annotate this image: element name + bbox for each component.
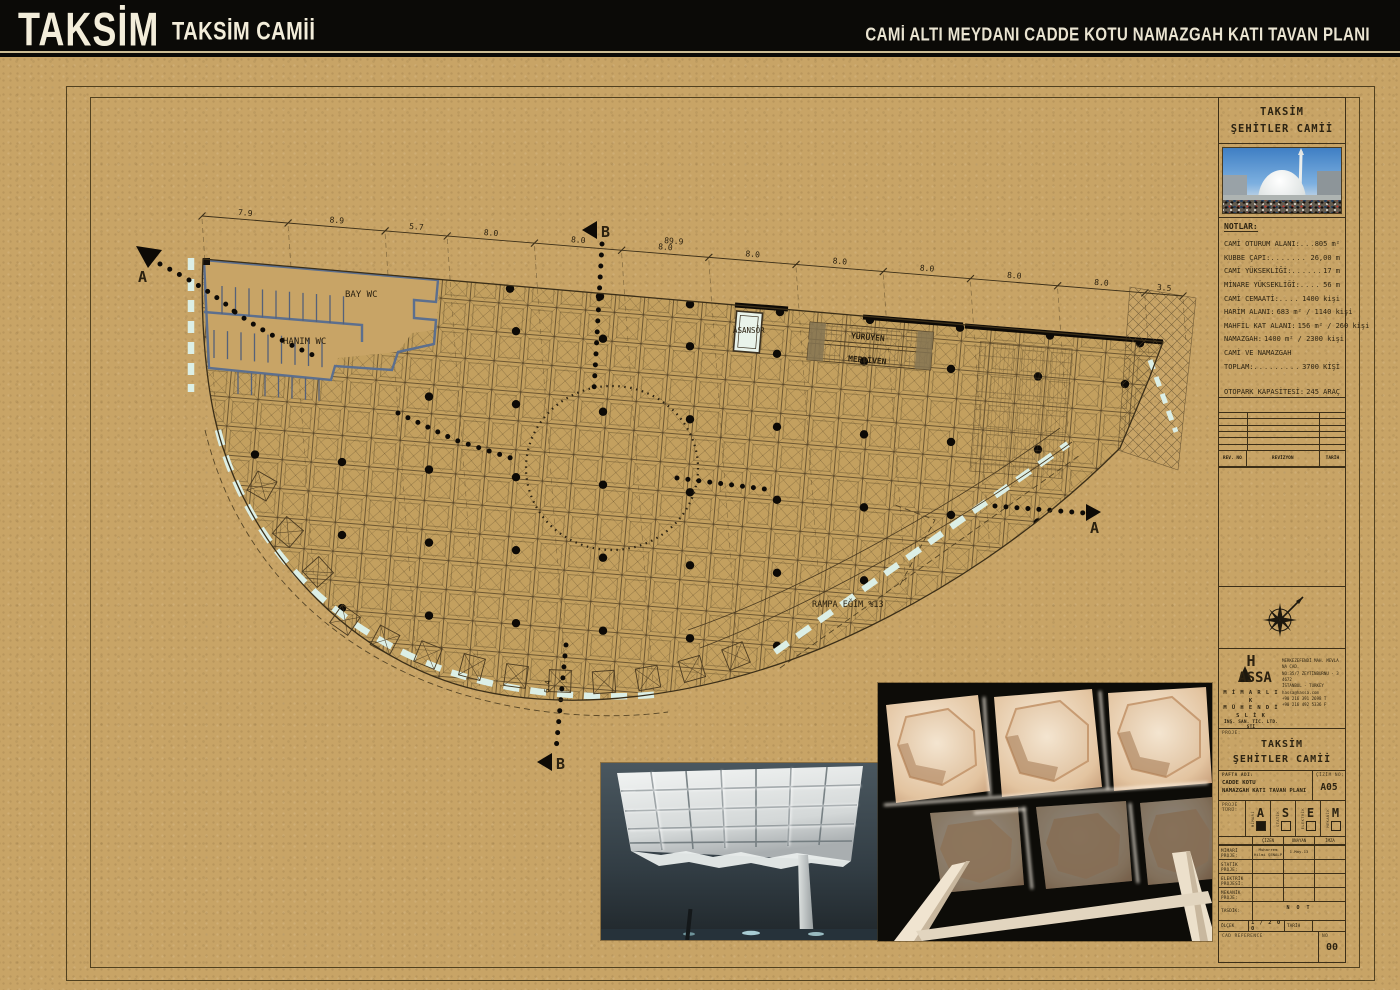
notes-list: CAMİ OTURUM ALANI:805 m²KUBBE ÇAPI:26,00…	[1224, 238, 1340, 400]
firm-address-line: NO:35/7 ZEYTİNBURNU - 34672	[1282, 671, 1341, 684]
firm-name-line2: M Ü H E N D İ S L İ K	[1223, 705, 1279, 720]
render1-image	[601, 763, 878, 940]
dimension-value: 8.0	[1094, 278, 1109, 288]
note-label: CAMİ YÜKSEKLİĞİ:	[1224, 265, 1291, 279]
proje-label: PROJE:	[1222, 731, 1241, 736]
proje-turu-main: M	[1331, 807, 1341, 831]
firm-address: MERKEZEFENDİ MAH. MEVLANA CAD.NO:35/7 ZE…	[1282, 652, 1341, 725]
dimension-value: 8.0	[571, 235, 586, 245]
date-label: TARİH	[1285, 921, 1313, 931]
signature-header-blank	[1219, 837, 1253, 844]
signature-row-cell	[1253, 874, 1284, 887]
proje-turu-main: A	[1256, 807, 1266, 831]
note-label: HARİM ALANI:	[1224, 306, 1275, 320]
svg-text:A: A	[1090, 519, 1099, 537]
blank-cell	[1219, 468, 1345, 587]
note-row: CAMİ CEMAATİ:1400 kişi	[1224, 293, 1340, 307]
firm-block: H ASSA M İ M A R L I K M Ü H E N D İ S L…	[1219, 649, 1345, 729]
scale-value: 1 / 2 0 0	[1249, 921, 1285, 931]
note-label: MİNARE YÜKSEKLİĞİ:	[1224, 279, 1300, 293]
proje-turu-main: E	[1306, 807, 1316, 831]
project-name-line1: TAKSİM	[1260, 104, 1304, 121]
drawing-sheet: TAKSİM TAKSİM CAMİİ CAMİ ALTI MEYDANI CA…	[0, 0, 1400, 990]
signature-row-cell	[1284, 888, 1315, 901]
revision-table: REV. NO REVİZYON TARİH	[1219, 412, 1345, 468]
note-label: CAMİ CEMAATİ:	[1224, 293, 1279, 307]
revision-cell	[1219, 432, 1248, 437]
notes-title: NOTLAR:	[1224, 222, 1258, 232]
photo-crowd	[1223, 200, 1341, 213]
firm-identity: H ASSA M İ M A R L I K M Ü H E N D İ S L…	[1223, 652, 1279, 725]
signature-row: STATİK PROJE:	[1219, 859, 1345, 873]
svg-text:B: B	[556, 755, 565, 773]
pafta-line2: NAMAZGAH KATI TAVAN PLANI	[1222, 787, 1309, 795]
proje-turu-option: MEKANİKM	[1321, 801, 1345, 836]
hassa-logo: H ASSA	[1228, 652, 1274, 686]
signature-row-cell	[1284, 874, 1315, 887]
svg-text:A: A	[138, 268, 147, 286]
sheet-title: CAMİ ALTI MEYDANI CADDE KOTU NAMAZGAH KA…	[865, 25, 1370, 45]
note-value: 1400 kişi	[1300, 293, 1340, 307]
dimension-value: 8.9	[329, 215, 344, 225]
signature-rows: MİMARİ PROJE:Muharrem Hilmi ŞENALP1.May.…	[1219, 845, 1345, 901]
note-label: TOPLAM:	[1224, 361, 1254, 375]
tasdik-row: TASDİK: N O T	[1219, 901, 1345, 921]
note-row: CAMİ OTURUM ALANI:805 m²	[1224, 238, 1340, 252]
revision-cell	[1248, 432, 1320, 437]
rampa-label: RAMPA EĞİM %13	[812, 598, 884, 610]
project-name-line2: ŞEHİTLER CAMİİ	[1231, 121, 1334, 138]
revision-cell	[1248, 419, 1320, 424]
pafta-row: PAFTA ADI: CADDE KOTU NAMAZGAH KATI TAVA…	[1219, 771, 1345, 801]
revision-no-value: 00	[1319, 942, 1345, 953]
signature-row-cell	[1253, 860, 1284, 873]
note-label: CAMİ VE NAMAZGAH	[1224, 347, 1291, 361]
north-compass-icon	[1255, 591, 1309, 645]
sheet-number: A05	[1313, 782, 1345, 793]
note-label: CAMİ OTURUM ALANI:	[1224, 238, 1300, 252]
revision-cell	[1320, 419, 1345, 424]
revision-no-cell: NO 00	[1319, 932, 1345, 962]
revision-cell	[1248, 426, 1320, 431]
scale-row: ÖLÇEK 1 / 2 0 0 TARİH	[1219, 921, 1345, 932]
notes-section: NOTLAR: CAMİ OTURUM ALANI:805 m²KUBBE ÇA…	[1219, 218, 1345, 398]
revision-cell	[1320, 426, 1345, 431]
no-label: NO	[1322, 934, 1328, 939]
render-interior-view	[601, 763, 878, 940]
revision-header-no: REV. NO	[1219, 451, 1247, 466]
pafta-label: PAFTA ADI:	[1222, 773, 1253, 780]
dimension-value: 8.0	[745, 249, 760, 259]
firm-address-line: MERKEZEFENDİ MAH. MEVLANA CAD.	[1282, 658, 1341, 671]
note-label: MAHFİL KAT ALANI:	[1224, 320, 1296, 334]
signature-row-cell: Muharrem Hilmi ŞENALP	[1253, 846, 1284, 859]
svg-text:B: B	[601, 223, 610, 241]
proje-turu-label: PROJE TÜRÜ:	[1222, 803, 1245, 813]
cizim-label: ÇİZİM NO:	[1316, 773, 1344, 778]
note-value: 805 m²	[1313, 238, 1340, 252]
signature-row-label: MEKANİK PROJE:	[1219, 888, 1253, 901]
revision-cell	[1248, 413, 1320, 418]
signature-row-label: MİMARİ PROJE:	[1219, 846, 1253, 859]
proje-turu-checkbox	[1331, 821, 1341, 831]
note-row: CAMİ YÜKSEKLİĞİ:17 m	[1224, 265, 1340, 279]
revision-cell	[1320, 438, 1345, 443]
proje-turu-name: MİMARİ	[1251, 811, 1255, 827]
taksim-logo: TAKSİM	[18, 2, 159, 57]
header-bar: TAKSİM TAKSİM CAMİİ CAMİ ALTI MEYDANI CA…	[0, 0, 1400, 57]
proje-turu-code: S	[1282, 807, 1289, 819]
signature-row-cell	[1315, 874, 1345, 887]
dimension-value: 8.0	[483, 228, 498, 238]
note-row: KUBBE ÇAPI:26,00 m	[1224, 252, 1340, 266]
proje-turu-code: M	[1332, 807, 1339, 819]
revision-header-desc: REVİZYON	[1247, 451, 1320, 466]
note-label: KUBBE ÇAPI:	[1224, 252, 1270, 266]
proje-turu-name: STATİK	[1276, 811, 1280, 827]
small-dimension: 6.4	[543, 680, 552, 693]
revision-header-date: TARİH	[1320, 451, 1345, 466]
cad-reference-cell: CAD REFERENCE	[1219, 932, 1319, 962]
dimension-value: 8.0	[919, 264, 934, 274]
signature-row-label: STATİK PROJE:	[1219, 860, 1253, 873]
signature-row: MİMARİ PROJE:Muharrem Hilmi ŞENALP1.May.…	[1219, 845, 1345, 859]
pafta-line1: CADDE KOTU	[1222, 779, 1309, 787]
proje-turu-row: PROJE TÜRÜ: MİMARİASTATİKSELEKTRİKEMEKAN…	[1219, 801, 1345, 837]
revision-header-row: REV. NO REVİZYON TARİH	[1219, 451, 1345, 467]
dimension-total: 89.9	[664, 236, 684, 247]
signature-row-cell: 1.May.13	[1284, 846, 1315, 859]
revision-empty-rows	[1219, 413, 1345, 451]
note-leader-dots	[1291, 265, 1321, 279]
signature-header-cell: İMZA	[1315, 837, 1345, 844]
dimension-value: 8.0	[832, 256, 847, 266]
asansor-label: ASANSÖR	[733, 326, 765, 335]
note-value: 17 m	[1321, 265, 1340, 279]
dimension-value: 7.9	[238, 208, 253, 218]
revision-cell	[1248, 445, 1320, 450]
svg-text:H: H	[1246, 652, 1255, 670]
proje-turu-label-cell: PROJE TÜRÜ:	[1219, 801, 1246, 836]
signature-row: MEKANİK PROJE:	[1219, 887, 1345, 901]
note-value: 3700 KİŞİ	[1300, 361, 1340, 375]
proje-name-line1: TAKSİM	[1261, 737, 1303, 752]
note-leader-dots	[1254, 361, 1301, 375]
note-value: 683 m² / 1140 kişi	[1275, 306, 1353, 320]
note-leader-dots	[1300, 279, 1321, 293]
logo-subtitle: TAKSİM CAMİİ	[172, 18, 315, 47]
note-value: 156 m² / 260 kişi	[1296, 320, 1370, 334]
proje-turu-name: ELEKTRİK	[1301, 808, 1305, 829]
dimension-value: 8.0	[1007, 271, 1022, 281]
signature-row-cell	[1253, 888, 1284, 901]
photo-minaret-tip	[1298, 148, 1304, 155]
signature-header-row: ÇİZENONAYANİMZA	[1219, 837, 1345, 845]
cad-row: CAD REFERENCE NO 00	[1219, 932, 1345, 962]
proje-turu-code: E	[1307, 807, 1314, 819]
proje-turu-option: ELEKTRİKE	[1296, 801, 1321, 836]
signature-row-label: ELEKTRİK PROJESİ:	[1219, 874, 1253, 887]
signature-header-cell: ONAYAN	[1284, 837, 1315, 844]
proje-turu-name: MEKANİK	[1326, 809, 1330, 828]
revision-cell	[1219, 426, 1248, 431]
proje-turu-code: A	[1257, 807, 1264, 819]
firm-name-line1: M İ M A R L I K	[1223, 690, 1279, 705]
signature-row-cell	[1315, 846, 1345, 859]
note-row: CAMİ VE NAMAZGAH	[1224, 347, 1340, 361]
note-row: MİNARE YÜKSEKLİĞİ:56 m	[1224, 279, 1340, 293]
proje-turu-main: S	[1281, 807, 1291, 831]
proje-turu-option: STATİKS	[1271, 801, 1296, 836]
proje-turu-checkbox	[1306, 821, 1316, 831]
signature-row-cell	[1284, 860, 1315, 873]
note-leader-dots	[1300, 238, 1313, 252]
bay-wc-label: BAY WC	[345, 290, 378, 300]
signature-row: ELEKTRİK PROJESİ:	[1219, 873, 1345, 887]
signature-header-cell: ÇİZEN	[1253, 837, 1284, 844]
revision-cell	[1320, 432, 1345, 437]
revision-cell	[1320, 445, 1345, 450]
pafta-cell: PAFTA ADI: CADDE KOTU NAMAZGAH KATI TAVA…	[1219, 771, 1313, 800]
revision-cell	[1219, 445, 1248, 450]
tasdik-value: N O T	[1253, 902, 1345, 920]
note-row: NAMAZGAH:1400 m² / 2300 kişi	[1224, 333, 1340, 347]
render-coffer-closeup	[878, 683, 1212, 941]
date-value	[1313, 921, 1345, 931]
revision-cell	[1248, 438, 1320, 443]
note-value: 1400 m² / 2300 kişi	[1262, 333, 1344, 347]
dimension-value: 3.5	[1157, 283, 1172, 293]
note-leader-dots	[1279, 293, 1300, 307]
svg-text:ASSA: ASSA	[1238, 670, 1272, 686]
notes-gap	[1224, 374, 1340, 386]
proje-turu-options: MİMARİASTATİKSELEKTRİKEMEKANİKM	[1246, 801, 1345, 836]
cizim-no-cell: ÇİZİM NO: A05	[1313, 771, 1345, 800]
note-value: 26,00 m	[1308, 252, 1340, 266]
title-block-project-name: TAKSİM ŞEHİTLER CAMİİ	[1219, 98, 1345, 144]
note-value: 56 m	[1321, 279, 1340, 293]
proje-turu-checkbox	[1281, 821, 1291, 831]
note-leader-dots	[1270, 252, 1308, 266]
note-row: MAHFİL KAT ALANI:156 m² / 260 kişi	[1224, 320, 1340, 334]
stair-structure-hatch	[970, 341, 1072, 478]
cad-reference-label: CAD REFERENCE	[1222, 934, 1263, 939]
project-photo-cell	[1219, 144, 1345, 218]
render2-image	[878, 683, 1212, 941]
revision-cell	[1219, 413, 1248, 418]
firm-address-line: +90 216 492 5336 F	[1282, 702, 1341, 708]
compass-cell	[1219, 587, 1345, 649]
revision-cell	[1219, 419, 1248, 424]
proje-cell: PROJE: TAKSİM ŞEHİTLER CAMİİ	[1219, 729, 1345, 771]
tasdik-label: TASDİK:	[1219, 902, 1253, 920]
revision-cell	[1219, 438, 1248, 443]
signature-row-cell	[1315, 860, 1345, 873]
spacer	[1219, 398, 1345, 412]
title-block: TAKSİM ŞEHİTLER CAMİİ NOTLAR: CAMİ OTURU…	[1218, 97, 1346, 963]
scale-label: ÖLÇEK	[1219, 921, 1249, 931]
note-row: HARİM ALANI:683 m² / 1140 kişi	[1224, 306, 1340, 320]
dimension-value: 5.7	[409, 222, 424, 232]
note-label: NAMAZGAH:	[1224, 333, 1262, 347]
mosque-photo	[1223, 148, 1341, 213]
proje-name-line2: ŞEHİTLER CAMİİ	[1233, 752, 1331, 767]
signature-row-cell	[1315, 888, 1345, 901]
revision-cell	[1320, 413, 1345, 418]
proje-turu-checkbox	[1256, 821, 1266, 831]
proje-turu-option: MİMARİA	[1246, 801, 1271, 836]
note-row: TOPLAM:3700 KİŞİ	[1224, 361, 1340, 375]
